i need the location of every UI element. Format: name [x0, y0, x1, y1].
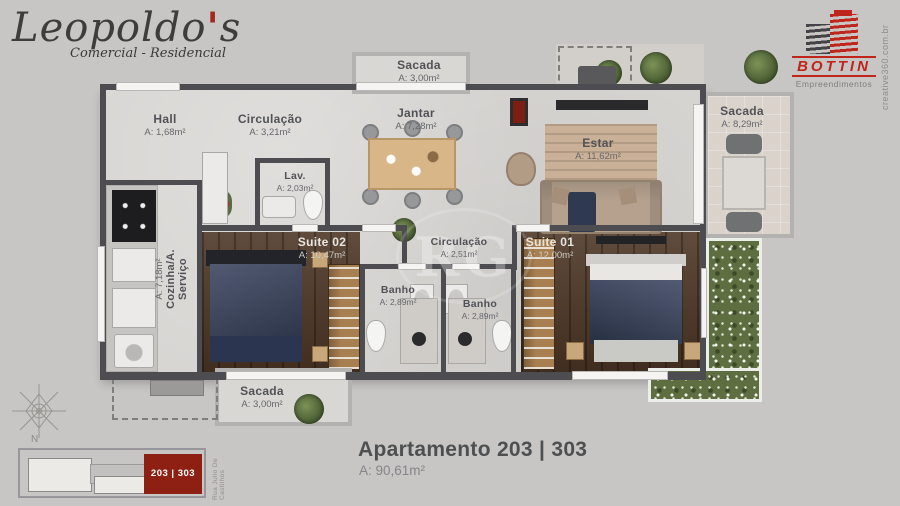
- wall-bath-left: [360, 264, 365, 372]
- room-label-circulacao-top: CirculaçãoA: 3,21m²: [220, 112, 320, 138]
- room-label-hall: HallA: 1,68m²: [125, 112, 205, 138]
- logo-name-main: Leopoldo: [12, 5, 206, 51]
- door-lav: [292, 224, 318, 232]
- bed-suite-01: [590, 280, 682, 344]
- nightstand: [566, 342, 584, 360]
- dining-chair: [362, 188, 379, 205]
- wall-lav-right: [325, 158, 330, 228]
- building-cap: [834, 10, 852, 16]
- room-label-cozinha: A: 7,18m²Cozinha/A. Serviço: [153, 229, 189, 329]
- window-suite-01: [572, 371, 668, 380]
- leopoldos-logo: Leopoldo's Comercial - Residencial: [12, 6, 242, 61]
- shower-drain-1: [412, 332, 426, 346]
- room-label-estar: EstarA: 11,62m²: [548, 136, 648, 162]
- logo-apostrophe: ': [206, 4, 219, 51]
- dining-chair: [404, 192, 421, 209]
- shower-drain-2: [458, 332, 472, 346]
- leopoldos-tagline: Comercial - Residencial: [70, 46, 242, 61]
- bed-blanket-suite-01: [594, 340, 678, 362]
- bottin-wordmark: BOTTIN: [792, 56, 876, 77]
- tv: [556, 100, 648, 110]
- building-tower-gray: [806, 24, 830, 54]
- site-building-outline: [28, 458, 92, 492]
- room-area: A: 12,00m²: [500, 250, 600, 261]
- room-name: Estar: [548, 136, 648, 150]
- window-suite-01-side: [701, 268, 707, 338]
- room-area: A: 7,28m²: [366, 121, 466, 132]
- cooktop: [112, 190, 156, 242]
- wall-art-red: [510, 98, 528, 126]
- balcony-table: [722, 156, 766, 210]
- room-name: Jantar: [366, 106, 466, 120]
- room-area: A: 3,21m²: [220, 127, 320, 138]
- compass-north-label: N: [31, 434, 38, 445]
- room-label-jantar: JantarA: 7,28m²: [366, 106, 466, 132]
- bottin-tagline: Empreendimentos: [792, 79, 876, 89]
- room-area: A: 11,62m²: [548, 151, 648, 162]
- room-area: A: 10,47m²: [272, 250, 372, 261]
- wall-lav-left: [255, 158, 260, 228]
- tv-suite-01: [596, 236, 666, 244]
- room-name: Sacada: [369, 58, 469, 72]
- dining-chair: [446, 188, 463, 205]
- credit-watermark: creative360.com.br: [880, 8, 890, 110]
- room-name: Banho: [440, 298, 520, 310]
- wall-lav-top: [255, 158, 330, 163]
- room-label-suite-02: Suite 02A: 10,47m²: [272, 235, 372, 261]
- fridge: [112, 248, 156, 282]
- room-area: A: 8,29m²: [692, 119, 792, 130]
- logo-name-end: s: [220, 5, 242, 51]
- sliding-door-balcony-bottom: [226, 371, 346, 380]
- balcony-chair: [726, 212, 762, 232]
- room-area: A: 3,00m²: [212, 399, 312, 410]
- plant: [640, 52, 672, 84]
- room-area: A: 2,89m²: [440, 311, 520, 321]
- washing-machine: [114, 334, 154, 368]
- room-name: Banho: [358, 284, 438, 296]
- room-name: Suite 01: [500, 235, 600, 249]
- room-name: Hall: [125, 112, 205, 126]
- floor-plan-page: Leopoldo's Comercial - Residencial BOTTI…: [0, 0, 900, 506]
- dining-table: [368, 138, 456, 190]
- room-name: Sacada: [692, 104, 792, 118]
- room-area: A: 2,03m²: [255, 183, 335, 193]
- room-label-sacada-bottom: SacadaA: 3,00m²: [212, 384, 312, 410]
- site-building-outline: [94, 476, 148, 494]
- room-label-circulacao-mid: CirculaçãoA: 2,51m²: [409, 236, 509, 259]
- room-label-lav: Lav.A: 2,03m²: [255, 170, 335, 193]
- plant: [744, 50, 778, 84]
- room-label-banho-2: BanhoA: 2,89m²: [440, 298, 520, 321]
- room-name: Circulação: [220, 112, 320, 126]
- room-area: A: 7,18m²: [154, 229, 165, 329]
- bed-blanket-suite-02: [210, 336, 302, 362]
- room-area: A: 3,00m²: [369, 73, 469, 84]
- wall-kitchen-top: [100, 180, 200, 185]
- site-plan: 203 | 303: [18, 448, 206, 498]
- room-label-suite-01: Suite 01A: 12,00m²: [500, 235, 600, 261]
- window-kitchen: [97, 246, 105, 342]
- entry-door: [116, 82, 180, 91]
- room-name: Lav.: [255, 170, 335, 182]
- sofa-cushion: [619, 187, 638, 206]
- room-label-sacada-top: SacadaA: 3,00m²: [369, 58, 469, 84]
- room-name: Circulação: [409, 236, 509, 248]
- terrace-table: [578, 66, 616, 86]
- compass-rose-icon: [10, 382, 68, 440]
- room-label-banho-1: BanhoA: 2,89m²: [358, 284, 438, 307]
- door-suite-02: [362, 224, 396, 232]
- room-area: A: 2,89m²: [358, 297, 438, 307]
- armchair: [506, 152, 536, 186]
- room-area: A: 2,51m²: [409, 249, 509, 259]
- street-label: Rua Julio De Castilhos: [212, 442, 226, 500]
- apartment-title: Apartamento 203 | 303: [358, 438, 587, 462]
- room-name: Sacada: [212, 384, 312, 398]
- apartment-total-area: A: 90,61m²: [359, 463, 425, 478]
- terrace-bench: [150, 380, 204, 396]
- room-area: A: 1,68m²: [125, 127, 205, 138]
- bottin-logo: BOTTIN Empreendimentos: [792, 10, 876, 89]
- nightstand: [312, 346, 328, 362]
- balcony-chair: [726, 134, 762, 154]
- sofa-cushion: [551, 187, 570, 206]
- site-unit-highlight: 203 | 303: [144, 454, 202, 494]
- room-name: Cozinha/A. Serviço: [165, 229, 189, 329]
- shower-bath-1: [400, 298, 438, 364]
- leopoldos-logo-text: Leopoldo's: [12, 6, 242, 50]
- room-label-sacada-right: SacadaA: 8,29m²: [692, 104, 792, 130]
- pantry-cabinet: [202, 152, 228, 224]
- bottin-building-icon: [804, 10, 864, 54]
- building-tower-red: [830, 14, 858, 54]
- wall-kitchen-divider: [197, 180, 202, 372]
- room-name: Suite 02: [272, 235, 372, 249]
- kitchen-sink: [112, 288, 156, 328]
- wardrobe-suite-02: [328, 264, 360, 370]
- sink-lav: [262, 196, 296, 218]
